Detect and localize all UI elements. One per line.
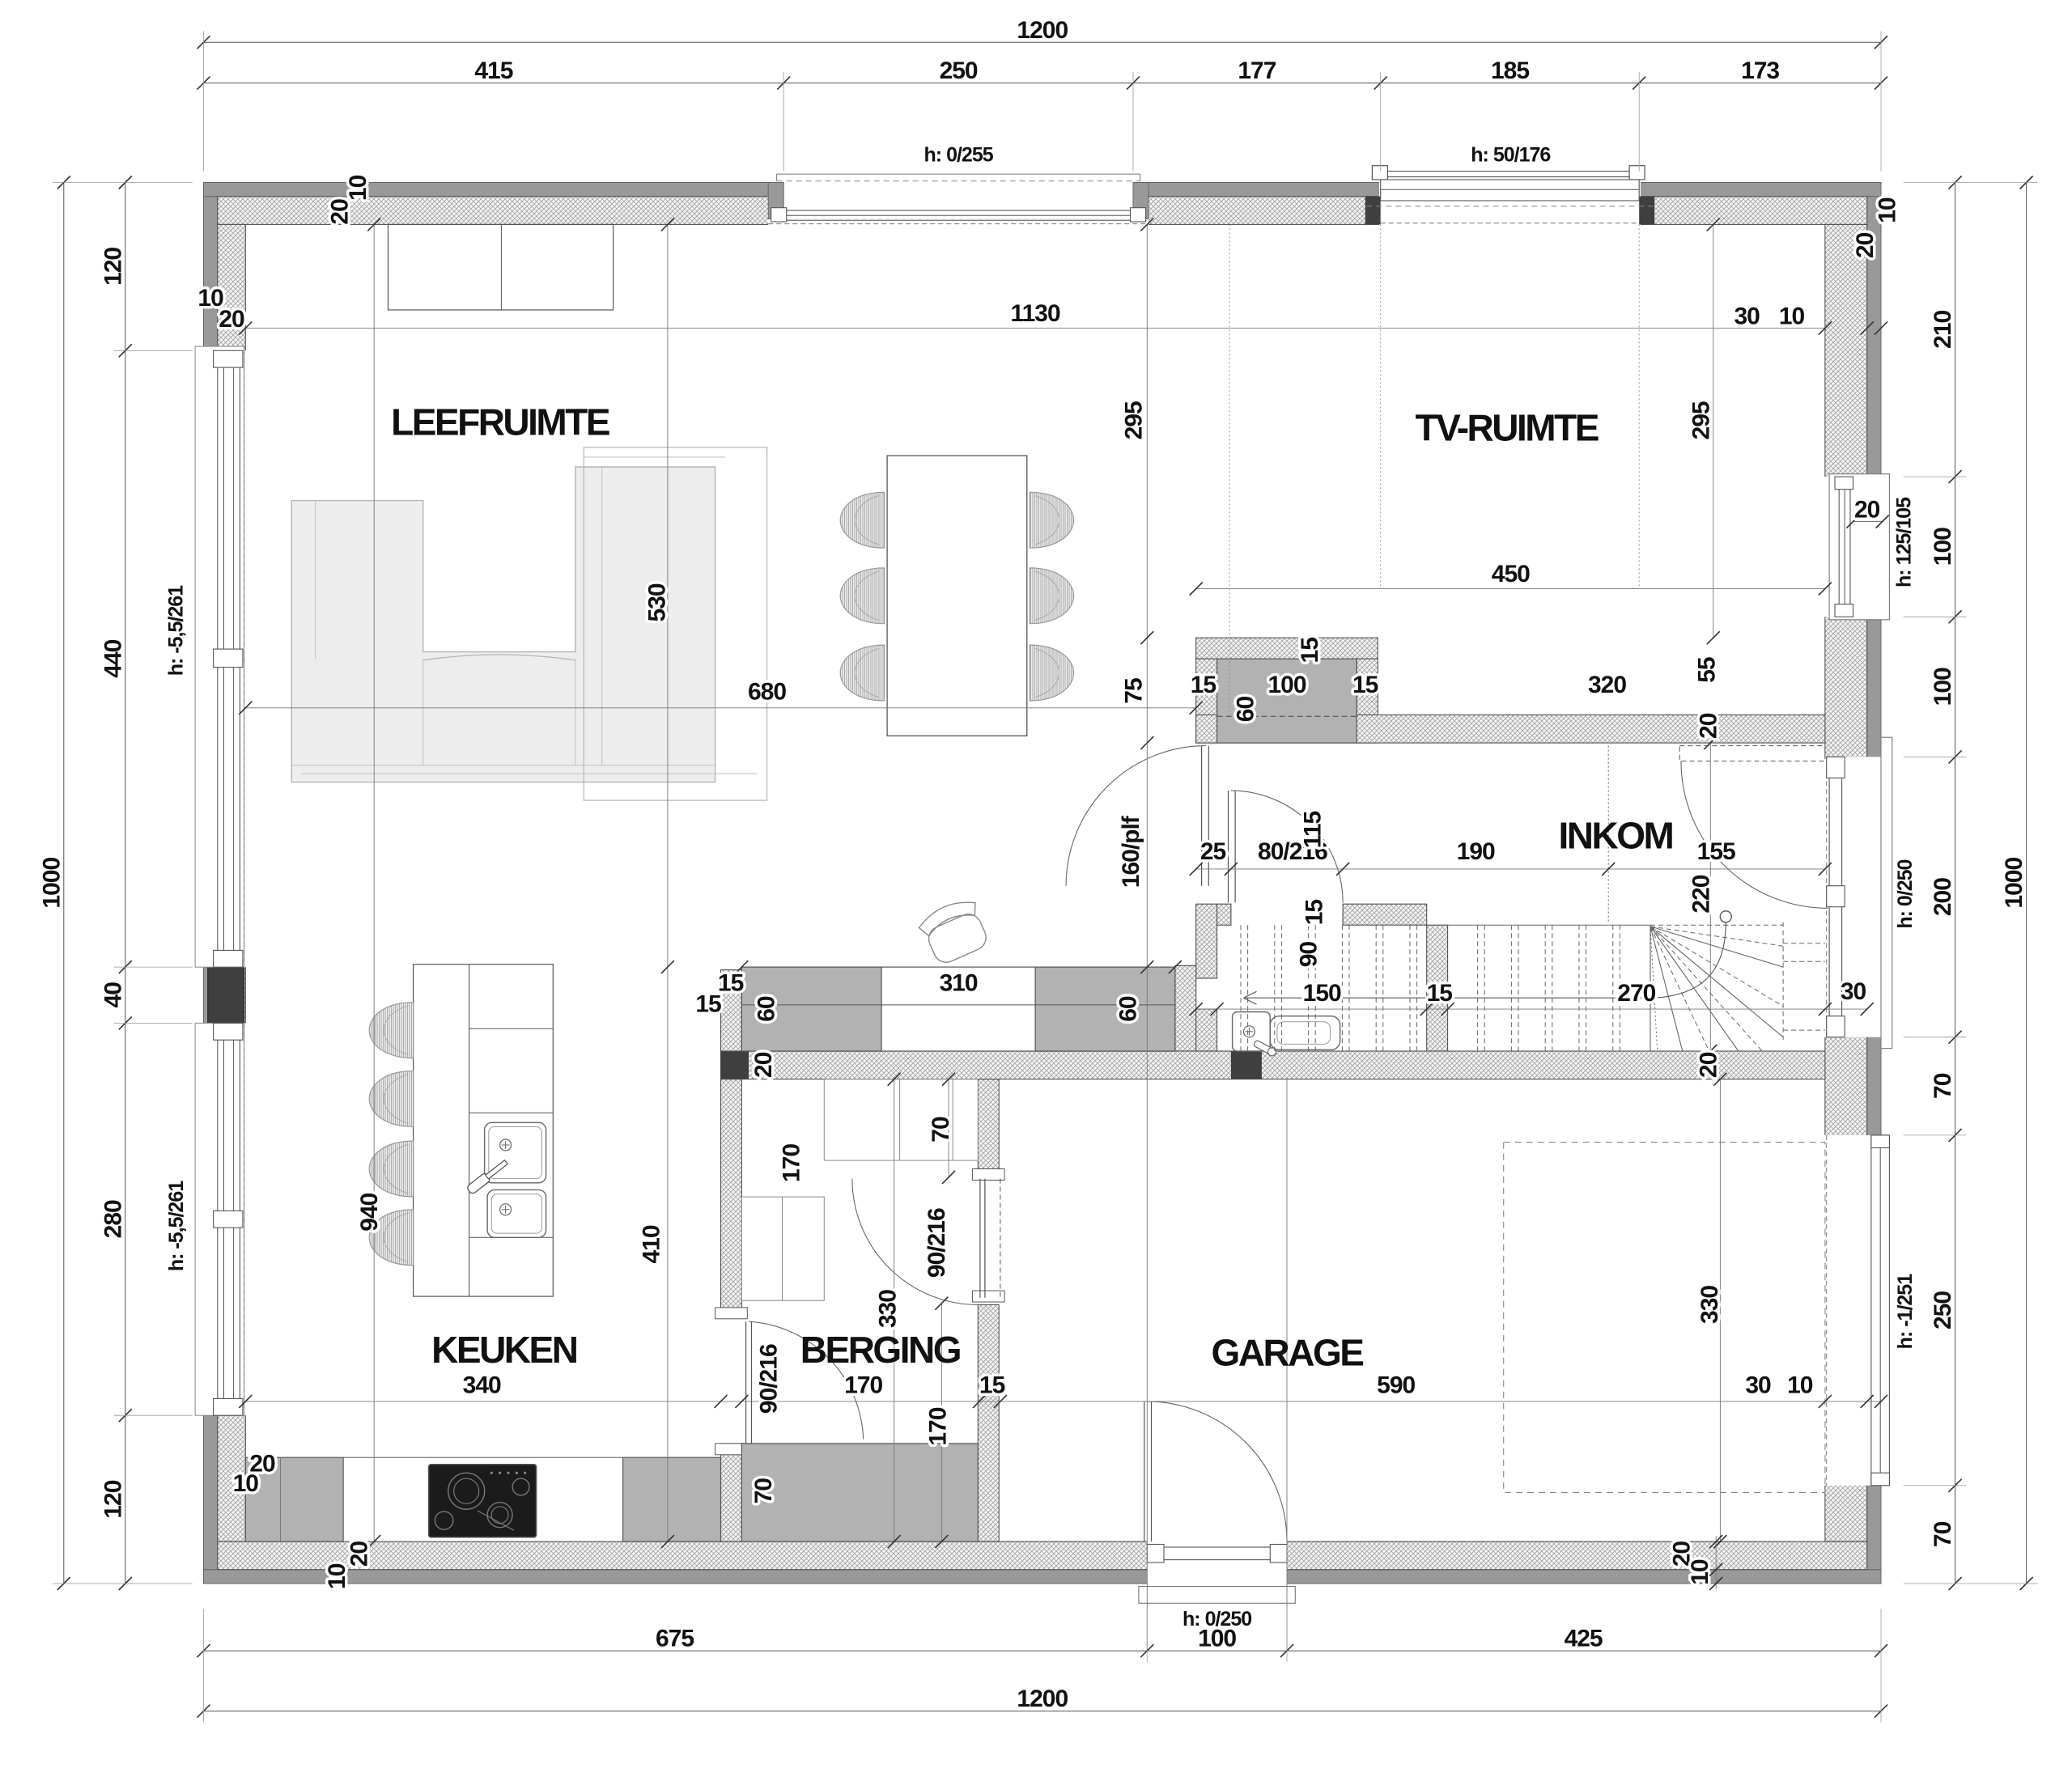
svg-text:415: 415 bbox=[474, 57, 512, 84]
svg-text:270: 270 bbox=[1617, 980, 1655, 1007]
svg-text:310: 310 bbox=[940, 970, 978, 997]
svg-text:LEEFRUIMTE: LEEFRUIMTE bbox=[391, 401, 609, 443]
svg-text:295: 295 bbox=[1121, 401, 1148, 439]
svg-text:90/216: 90/216 bbox=[923, 1208, 950, 1278]
svg-text:INKOM: INKOM bbox=[1558, 815, 1672, 857]
svg-text:75: 75 bbox=[1121, 678, 1148, 704]
svg-text:15: 15 bbox=[695, 991, 721, 1018]
svg-text:GARAGE: GARAGE bbox=[1212, 1331, 1364, 1373]
svg-text:70: 70 bbox=[1930, 1073, 1956, 1099]
svg-text:450: 450 bbox=[1492, 561, 1530, 587]
svg-text:60: 60 bbox=[1233, 697, 1259, 723]
svg-text:15: 15 bbox=[1427, 980, 1453, 1007]
svg-text:280: 280 bbox=[100, 1200, 126, 1238]
svg-text:90: 90 bbox=[1295, 942, 1322, 968]
svg-text:15: 15 bbox=[718, 970, 744, 997]
svg-text:170: 170 bbox=[925, 1407, 952, 1445]
svg-text:1000: 1000 bbox=[38, 858, 65, 909]
svg-text:30: 30 bbox=[1841, 978, 1866, 1005]
svg-text:60: 60 bbox=[1115, 996, 1142, 1022]
svg-text:h: 125/105: h: 125/105 bbox=[1892, 497, 1915, 587]
svg-text:250: 250 bbox=[1930, 1291, 1956, 1329]
svg-text:320: 320 bbox=[1588, 672, 1626, 698]
svg-text:680: 680 bbox=[748, 679, 786, 706]
svg-text:330: 330 bbox=[875, 1290, 902, 1328]
svg-text:15: 15 bbox=[1297, 638, 1323, 664]
svg-text:425: 425 bbox=[1565, 1626, 1603, 1652]
svg-text:330: 330 bbox=[1696, 1286, 1723, 1324]
svg-text:120: 120 bbox=[100, 248, 126, 286]
svg-text:70: 70 bbox=[750, 1478, 777, 1504]
svg-text:250: 250 bbox=[940, 57, 978, 84]
svg-text:20: 20 bbox=[750, 1052, 777, 1078]
svg-text:10: 10 bbox=[345, 175, 372, 201]
svg-text:170: 170 bbox=[844, 1372, 882, 1399]
svg-text:30: 30 bbox=[1734, 303, 1760, 330]
svg-text:100: 100 bbox=[1267, 672, 1306, 698]
svg-text:15: 15 bbox=[1301, 900, 1327, 926]
svg-text:340: 340 bbox=[463, 1372, 501, 1399]
svg-text:15: 15 bbox=[979, 1372, 1005, 1399]
svg-text:1200: 1200 bbox=[1017, 17, 1068, 44]
svg-text:25: 25 bbox=[1200, 838, 1226, 865]
svg-text:190: 190 bbox=[1457, 838, 1495, 865]
svg-text:h: -5,5/261: h: -5,5/261 bbox=[165, 1181, 188, 1271]
svg-text:20: 20 bbox=[1854, 496, 1880, 523]
svg-text:70: 70 bbox=[1930, 1521, 1956, 1547]
svg-text:h: -5,5/261: h: -5,5/261 bbox=[165, 585, 188, 676]
svg-text:h: 0/250: h: 0/250 bbox=[1182, 1608, 1251, 1630]
svg-text:530: 530 bbox=[644, 583, 671, 621]
svg-text:115: 115 bbox=[1300, 811, 1327, 848]
svg-text:210: 210 bbox=[1930, 310, 1956, 348]
svg-text:10: 10 bbox=[1687, 1559, 1713, 1585]
svg-text:h: 0/255: h: 0/255 bbox=[924, 144, 994, 167]
svg-text:100: 100 bbox=[1930, 528, 1956, 566]
svg-text:40: 40 bbox=[100, 982, 126, 1008]
svg-text:155: 155 bbox=[1697, 838, 1735, 865]
svg-text:220: 220 bbox=[1688, 875, 1715, 913]
svg-text:440: 440 bbox=[100, 639, 126, 677]
svg-text:10: 10 bbox=[1779, 303, 1805, 330]
svg-text:20: 20 bbox=[1852, 232, 1879, 258]
svg-text:90/216: 90/216 bbox=[756, 1344, 783, 1414]
svg-text:20: 20 bbox=[1695, 713, 1722, 739]
svg-text:20: 20 bbox=[1695, 1052, 1722, 1078]
svg-text:940: 940 bbox=[356, 1193, 383, 1231]
svg-text:295: 295 bbox=[1688, 401, 1715, 439]
svg-text:410: 410 bbox=[639, 1225, 665, 1263]
svg-text:675: 675 bbox=[656, 1626, 694, 1652]
svg-text:173: 173 bbox=[1741, 57, 1779, 84]
svg-text:10: 10 bbox=[1787, 1372, 1813, 1399]
svg-text:TV-RUIMTE: TV-RUIMTE bbox=[1416, 407, 1599, 449]
svg-text:30: 30 bbox=[1745, 1372, 1771, 1399]
svg-text:590: 590 bbox=[1377, 1372, 1415, 1399]
svg-text:170: 170 bbox=[778, 1144, 805, 1182]
svg-text:160/plf: 160/plf bbox=[1118, 815, 1144, 888]
svg-text:20: 20 bbox=[346, 1541, 373, 1567]
svg-text:200: 200 bbox=[1930, 878, 1956, 916]
svg-text:150: 150 bbox=[1303, 980, 1341, 1007]
svg-text:10: 10 bbox=[1874, 197, 1900, 223]
svg-text:55: 55 bbox=[1694, 657, 1721, 683]
svg-text:20: 20 bbox=[327, 199, 354, 225]
svg-text:120: 120 bbox=[100, 1480, 126, 1518]
svg-text:177: 177 bbox=[1238, 57, 1276, 84]
svg-text:185: 185 bbox=[1491, 57, 1529, 84]
svg-text:KEUKEN: KEUKEN bbox=[431, 1329, 577, 1371]
svg-text:60: 60 bbox=[753, 996, 779, 1022]
svg-text:20: 20 bbox=[219, 306, 244, 333]
svg-text:10: 10 bbox=[324, 1563, 350, 1589]
svg-text:15: 15 bbox=[1352, 672, 1378, 698]
svg-text:100: 100 bbox=[1930, 668, 1956, 706]
svg-text:1200: 1200 bbox=[1017, 1686, 1068, 1712]
svg-text:h: 50/176: h: 50/176 bbox=[1471, 144, 1550, 167]
svg-text:h: 0/250: h: 0/250 bbox=[1894, 859, 1917, 928]
svg-text:BERGING: BERGING bbox=[800, 1329, 960, 1371]
svg-text:h: -1/251: h: -1/251 bbox=[1894, 1274, 1917, 1350]
svg-text:1130: 1130 bbox=[1011, 300, 1060, 327]
svg-text:10: 10 bbox=[233, 1470, 259, 1497]
svg-text:15: 15 bbox=[1191, 672, 1216, 698]
svg-text:1000: 1000 bbox=[2001, 858, 2027, 909]
svg-text:70: 70 bbox=[928, 1117, 954, 1143]
